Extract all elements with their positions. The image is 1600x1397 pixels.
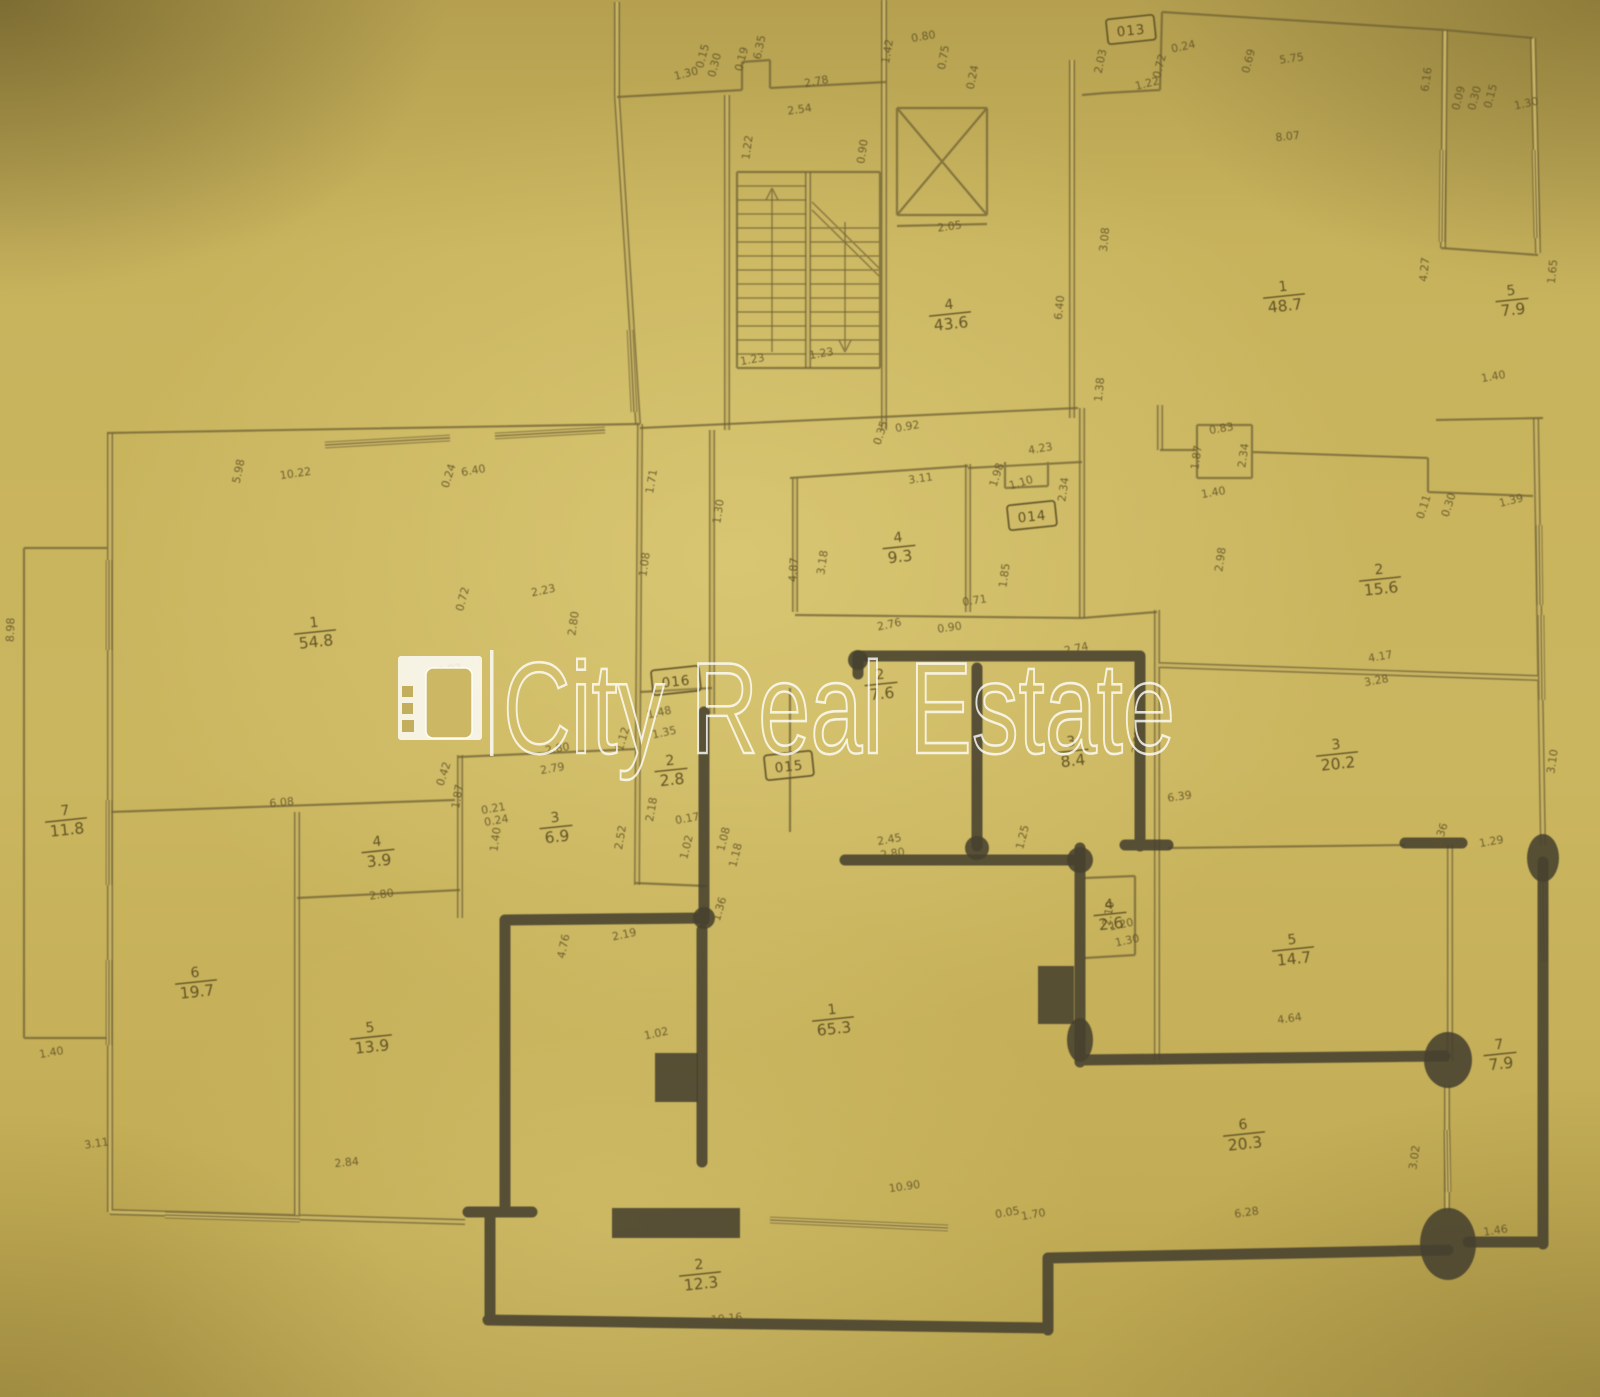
room-number: 4 (1104, 897, 1115, 914)
dimension-label: 0.15 (1481, 83, 1500, 110)
dimension-label: 1.65 (1545, 259, 1560, 285)
room-area: 15.6 (1363, 578, 1399, 600)
dimension-label: 3.02 (1406, 1144, 1422, 1170)
room-label: 165.3 (810, 1000, 856, 1040)
dimension-label: 1.40 (487, 826, 503, 852)
dimension-label: 0.11 (1414, 493, 1434, 520)
watermark: City Real Estate (398, 635, 1175, 781)
dimension-label: 1.38 (1092, 377, 1107, 403)
dimension-label: 0.05 (994, 1204, 1020, 1221)
dimension-label: 4.76 (555, 933, 573, 960)
dimension-label: 1.70 (1020, 1206, 1046, 1223)
dimension-label: 2.05 (936, 218, 962, 234)
dimension-label: 6.35 (751, 34, 769, 61)
dimension-label: 1.02 (643, 1025, 670, 1043)
room-area: 19.7 (179, 981, 215, 1003)
room-area: 11.8 (49, 819, 85, 841)
elevator-shaft (897, 108, 987, 215)
dimension-label: 1.87 (449, 783, 466, 809)
dimension-label: 0.42 (434, 760, 454, 787)
room-area: 3.9 (366, 851, 392, 871)
room-number: 2 (694, 1257, 705, 1274)
room-area: 43.6 (933, 313, 969, 335)
room-area: 13.9 (354, 1036, 390, 1058)
room-area: 9.3 (887, 547, 913, 567)
dimension-label: 4.17 (1367, 648, 1393, 665)
dimension-label: 3.10 (1544, 748, 1560, 774)
dimension-label: 0.83 (1208, 420, 1234, 437)
room-number: 4 (944, 297, 955, 314)
dimension-label: 4.27 (1417, 257, 1432, 283)
dimension-label: 1.29 (1478, 833, 1504, 850)
dimension-label: 0.92 (894, 418, 920, 435)
dimension-label: 10.90 (888, 1178, 921, 1195)
dimension-label: 6.40 (1052, 295, 1067, 321)
dimension-label: 0.30 (1465, 85, 1484, 112)
dimension-label: 3.18 (814, 549, 830, 575)
dimension-label: 6.16 (1418, 66, 1434, 92)
room-area: 65.3 (816, 1018, 852, 1040)
room-area: 2.6 (1098, 914, 1124, 934)
dimension-label: 2.19 (611, 926, 638, 944)
room-label: 711.8 (43, 801, 89, 841)
room-number: 1 (1278, 279, 1289, 296)
city-real-estate-logo-icon (398, 656, 482, 740)
room-label: 443.6 (927, 295, 973, 335)
dimension-label: 1.98 (987, 461, 1007, 488)
dimension-label: 3.11 (83, 1135, 109, 1151)
door-tag-label: 014 (1017, 508, 1047, 527)
dimension-label: 1.40 (1480, 368, 1506, 385)
dimension-label: 6.08 (269, 795, 295, 810)
dimension-label: 1.30 (710, 498, 726, 524)
dimension-label: 5.98 (230, 458, 248, 485)
dimension-label: 3.11 (907, 470, 933, 486)
dimension-label: 2.52 (612, 824, 629, 850)
room-area: 54.8 (298, 631, 334, 653)
dimension-label: 0.80 (910, 28, 936, 45)
dimension-label: 2.80 (565, 610, 581, 636)
door-tag: 014 (1007, 501, 1057, 531)
dimension-label: 1.02 (677, 834, 696, 861)
watermark-text: City Real Estate (503, 635, 1175, 781)
room-number: 7 (60, 803, 71, 820)
dimension-label: 0.35 (871, 419, 891, 446)
room-label: 49.3 (881, 528, 918, 567)
room-number: 4 (372, 834, 383, 851)
dimension-label: 0.17 (674, 810, 700, 827)
dimension-label: 1.18 (726, 842, 745, 869)
floor-plan-photo: 1.300.150.300.196.352.782.541.220.901.42… (0, 0, 1600, 1397)
dimension-label: 0.24 (1170, 38, 1197, 56)
dimension-label: 0.90 (854, 138, 870, 164)
dimension-label: 2.80 (368, 886, 394, 902)
room-label: 42.6 (1092, 895, 1129, 934)
dimension-label: 3.08 (1097, 227, 1112, 253)
dimension-label: 1.08 (636, 551, 652, 577)
dimension-label: 1.23 (808, 345, 834, 362)
room-number: 5 (1506, 283, 1517, 300)
dimension-label: 1.40 (1200, 484, 1226, 501)
dimension-label: 1.22 (739, 134, 755, 160)
room-number: 1 (309, 615, 320, 632)
dimension-label: 1.46 (1482, 1222, 1508, 1238)
dimension-label: 6.39 (1166, 788, 1192, 804)
dimension-label: 6.28 (1233, 1204, 1259, 1220)
room-label: 619.7 (173, 963, 219, 1003)
room-number: 5 (365, 1020, 376, 1037)
dimension-label: 2.76 (876, 616, 903, 634)
dimension-label: 5.75 (1278, 50, 1304, 66)
room-label: 514.7 (1270, 930, 1316, 970)
dimension-label: 10.22 (279, 465, 312, 482)
room-number: 6 (190, 965, 201, 982)
room-number: 6 (1238, 1117, 1249, 1134)
room-label: 215.6 (1357, 560, 1403, 600)
dimension-label: 2.54 (786, 101, 812, 117)
dimension-label: 1.85 (996, 562, 1012, 588)
room-number: 5 (1287, 932, 1298, 949)
dimension-label: 2.84 (334, 1155, 360, 1170)
room-label: 57.9 (1494, 281, 1531, 320)
dimension-label: 2.03 (1092, 48, 1110, 75)
dimension-label: 8.98 (4, 617, 18, 642)
room-label: 320.2 (1314, 735, 1360, 775)
watermark-divider-bar (490, 650, 494, 756)
room-area: 6.9 (544, 827, 570, 847)
room-label: 513.9 (348, 1018, 394, 1058)
walls-single (24, 12, 1543, 1038)
room-label: 212.3 (677, 1255, 723, 1295)
dimension-label: 0.71 (961, 592, 987, 608)
dimension-label: 4.64 (1276, 1010, 1302, 1026)
dimension-label: 2.34 (1055, 476, 1071, 502)
room-area: 20.3 (1227, 1133, 1263, 1155)
room-label: 148.7 (1261, 277, 1307, 317)
dimension-label: 1.71 (643, 468, 660, 494)
dimension-label: 2.18 (643, 796, 660, 822)
dimension-label: 1.87 (1188, 444, 1204, 470)
dimension-label: 8.07 (1275, 129, 1301, 144)
door-tag: 013 (1106, 15, 1156, 45)
room-number: 1 (827, 1002, 838, 1019)
dimension-label: 1.23 (739, 351, 765, 368)
room-label: 77.9 (1482, 1035, 1519, 1074)
dimension-label: 0.24 (964, 64, 982, 91)
dimension-label: 1.40 (38, 1044, 64, 1061)
dimension-label: 0.24 (483, 812, 509, 829)
dimension-label: 1.36 (710, 895, 729, 922)
dimension-label: 0.75 (935, 44, 952, 70)
room-area: 7.9 (1500, 300, 1526, 320)
floor-plan-drawing: 1.300.150.300.196.352.782.541.220.901.42… (0, 0, 1600, 1397)
room-area: 12.3 (683, 1273, 719, 1295)
dimension-label: 6.40 (460, 462, 486, 479)
room-area: 14.7 (1276, 948, 1312, 970)
room-number: 3 (1331, 737, 1342, 754)
room-label: 620.3 (1221, 1115, 1267, 1155)
dimension-label: 0.24 (439, 462, 459, 489)
room-area: 48.7 (1267, 295, 1303, 317)
room-area: 20.2 (1320, 753, 1356, 775)
dimension-label: 0.30 (1439, 491, 1459, 518)
dimension-label: 2.78 (803, 73, 829, 90)
dimension-label: 2.98 (1212, 546, 1228, 572)
dimension-label: 1.25 (1013, 824, 1032, 851)
dimension-label: 2.23 (530, 582, 557, 600)
room-label: 154.8 (292, 613, 338, 653)
dimension-label: 0.90 (936, 619, 962, 635)
dimension-label: 1.30 (1114, 932, 1141, 950)
room-number: 2 (1374, 562, 1385, 579)
dimension-label: 2.34 (1235, 442, 1251, 468)
dimension-label: 4.87 (786, 557, 801, 582)
room-label: 43.9 (360, 832, 397, 871)
dimension-label: 1.10 (1007, 473, 1034, 492)
room-area: 7.9 (1488, 1054, 1514, 1074)
dimension-label: 3.28 (1363, 672, 1389, 689)
room-number: 4 (893, 530, 904, 547)
dimension-label: 4.23 (1027, 440, 1053, 457)
dimension-label: 0.72 (1150, 53, 1169, 80)
dimension-label: 0.69 (1239, 48, 1258, 75)
room-number: 3 (550, 810, 561, 827)
dimension-label: 0.19 (732, 46, 751, 73)
dimension-label: 1.42 (879, 38, 896, 64)
room-label: 36.9 (538, 808, 575, 847)
dimension-label: 0.72 (453, 586, 472, 613)
door-tag-label: 013 (1116, 22, 1146, 41)
room-number: 7 (1494, 1037, 1505, 1054)
